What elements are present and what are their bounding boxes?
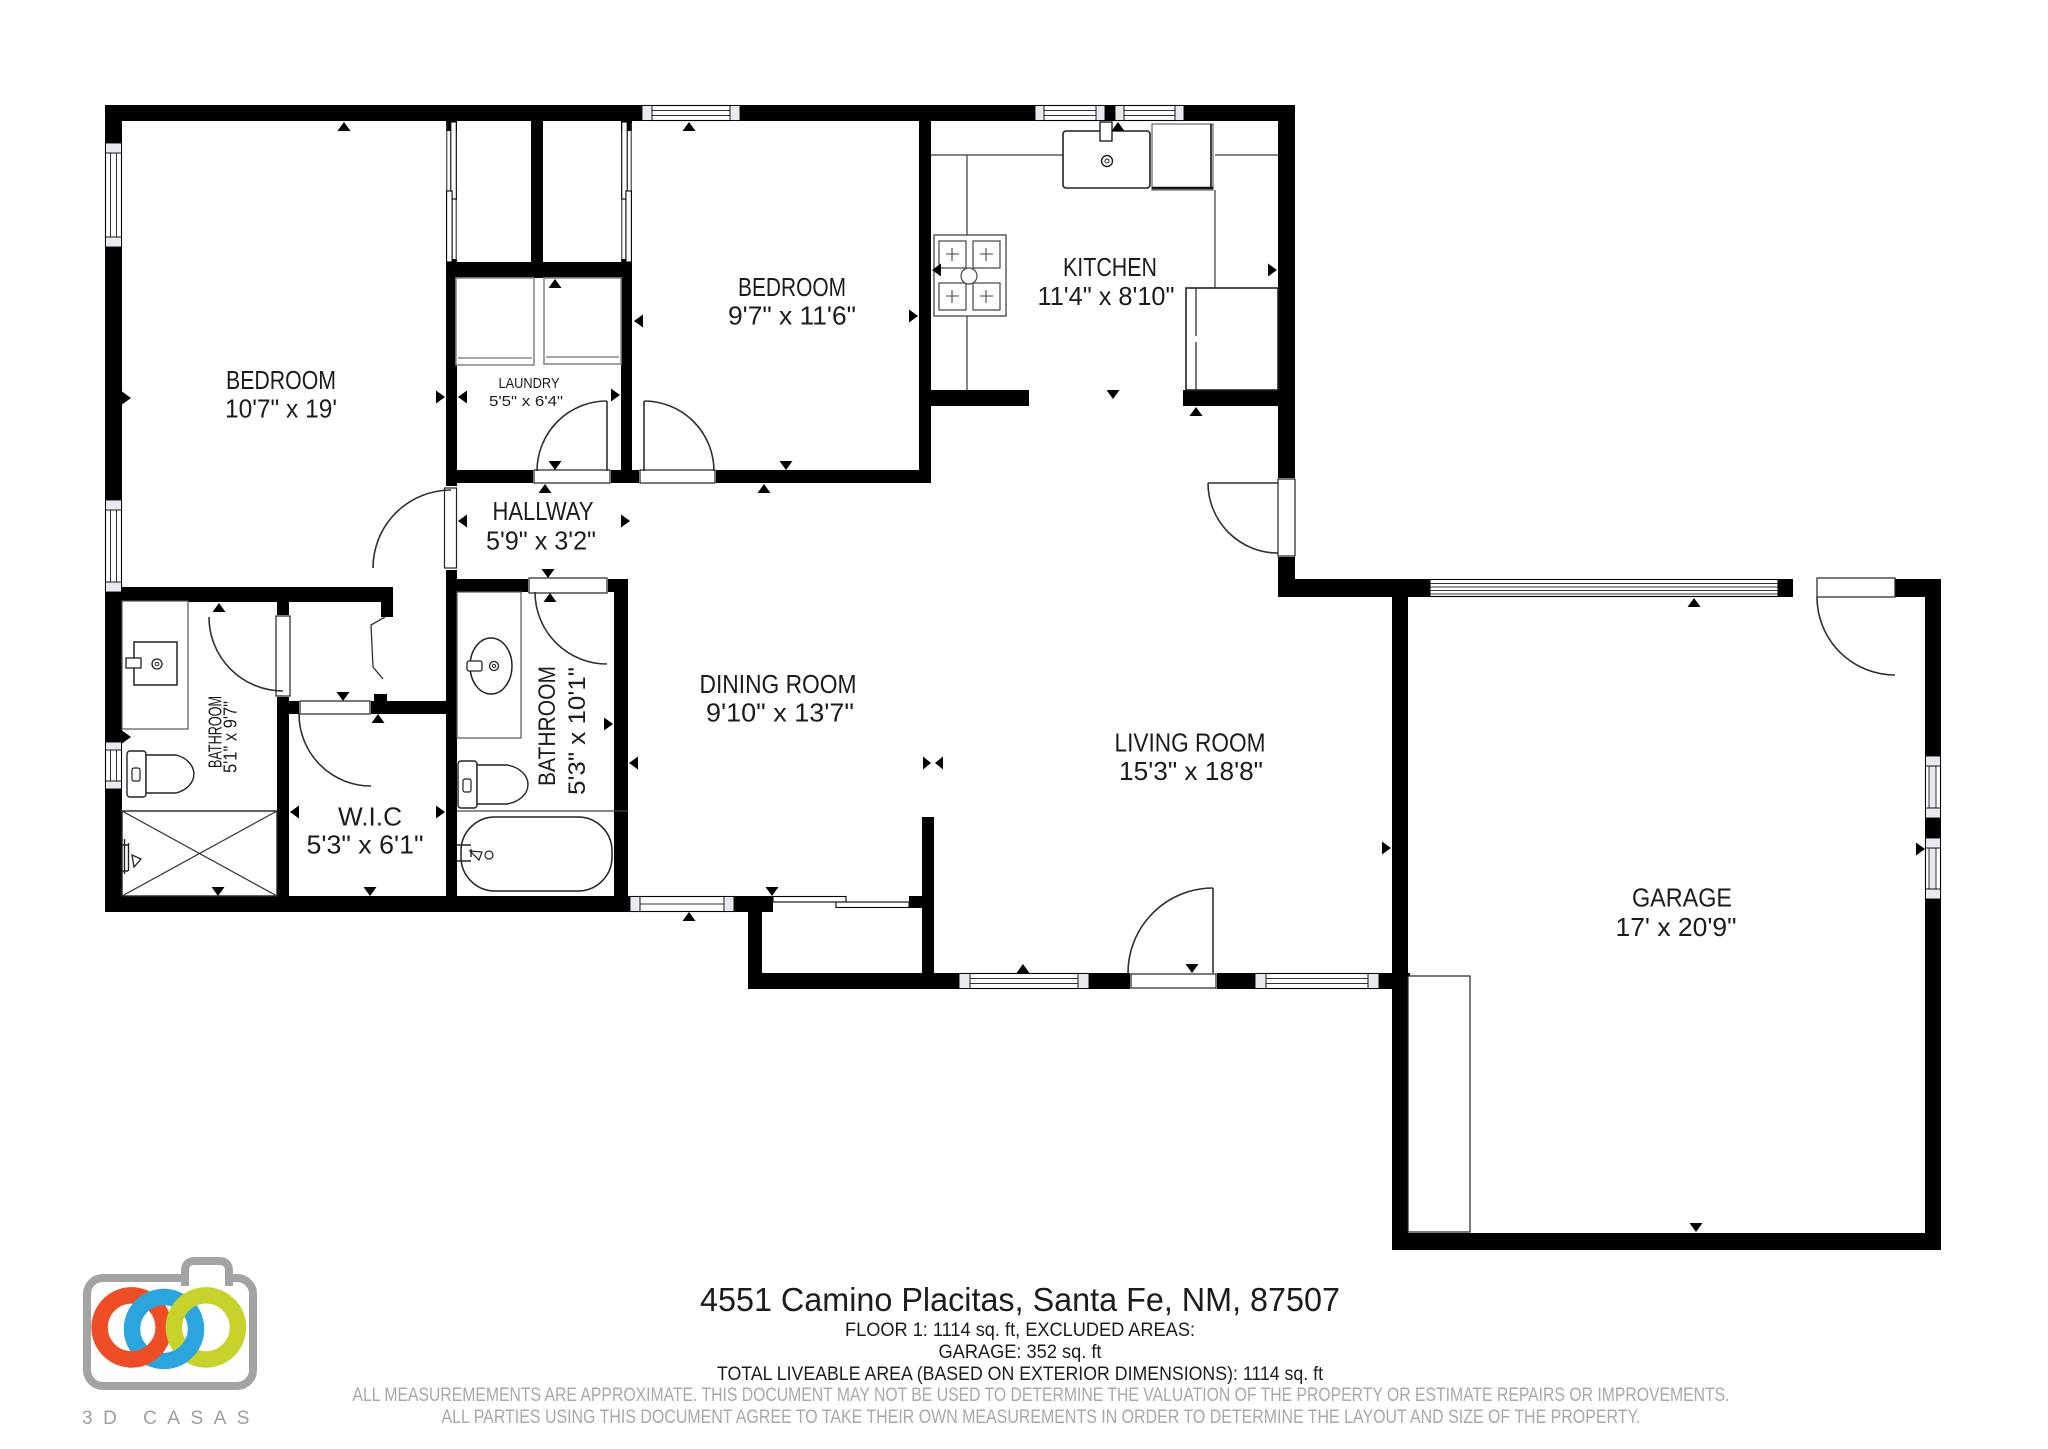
svg-text:5'3" x 10'1": 5'3" x 10'1" — [564, 667, 591, 795]
svg-text:GARAGE: 352 sq. ft: GARAGE: 352 sq. ft — [939, 1342, 1103, 1363]
svg-text:3D CASAS: 3D CASAS — [82, 1408, 260, 1429]
svg-text:GARAGE: GARAGE — [1632, 883, 1732, 913]
svg-text:LAUNDRY: LAUNDRY — [499, 375, 560, 392]
svg-text:BATHROOM: BATHROOM — [534, 666, 561, 786]
svg-text:5'9" x 3'2": 5'9" x 3'2" — [486, 526, 596, 556]
svg-text:ALL MEASUREMEMENTS ARE APPROXI: ALL MEASUREMEMENTS ARE APPROXIMATE. THIS… — [353, 1385, 1730, 1406]
svg-text:4551 Camino Placitas, Santa Fe: 4551 Camino Placitas, Santa Fe, NM, 8750… — [700, 1281, 1340, 1318]
svg-text:17' x 20'9": 17' x 20'9" — [1616, 912, 1737, 942]
svg-text:ALL PARTIES USING THIS DOCUMEN: ALL PARTIES USING THIS DOCUMENT AGREE TO… — [442, 1407, 1641, 1428]
svg-text:BEDROOM: BEDROOM — [738, 272, 846, 302]
svg-text:9'7" x 11'6": 9'7" x 11'6" — [728, 301, 856, 331]
svg-text:10'7" x 19': 10'7" x 19' — [225, 394, 337, 424]
svg-text:5'1" x 9'7": 5'1" x 9'7" — [221, 701, 241, 773]
svg-text:5'3" x 6'1": 5'3" x 6'1" — [307, 830, 424, 860]
svg-text:9'10" x 13'7": 9'10" x 13'7" — [706, 698, 854, 728]
svg-text:KITCHEN: KITCHEN — [1063, 252, 1157, 282]
svg-text:HALLWAY: HALLWAY — [493, 496, 594, 526]
svg-text:FLOOR 1: 1114 sq. ft, EXCLUDED: FLOOR 1: 1114 sq. ft, EXCLUDED AREAS: — [845, 1320, 1195, 1341]
svg-text:TOTAL LIVEABLE AREA (BASED ON: TOTAL LIVEABLE AREA (BASED ON EXTERIOR D… — [717, 1364, 1324, 1385]
svg-text:15'3" x 18'8": 15'3" x 18'8" — [1119, 756, 1263, 786]
svg-text:11'4" x 8'10": 11'4" x 8'10" — [1038, 281, 1175, 311]
svg-text:W.I.C: W.I.C — [338, 802, 402, 832]
svg-text:LIVING ROOM: LIVING ROOM — [1115, 728, 1266, 758]
svg-text:DINING ROOM: DINING ROOM — [700, 669, 857, 699]
svg-text:BEDROOM: BEDROOM — [226, 365, 336, 395]
svg-text:5'5" x 6'4": 5'5" x 6'4" — [489, 393, 563, 410]
